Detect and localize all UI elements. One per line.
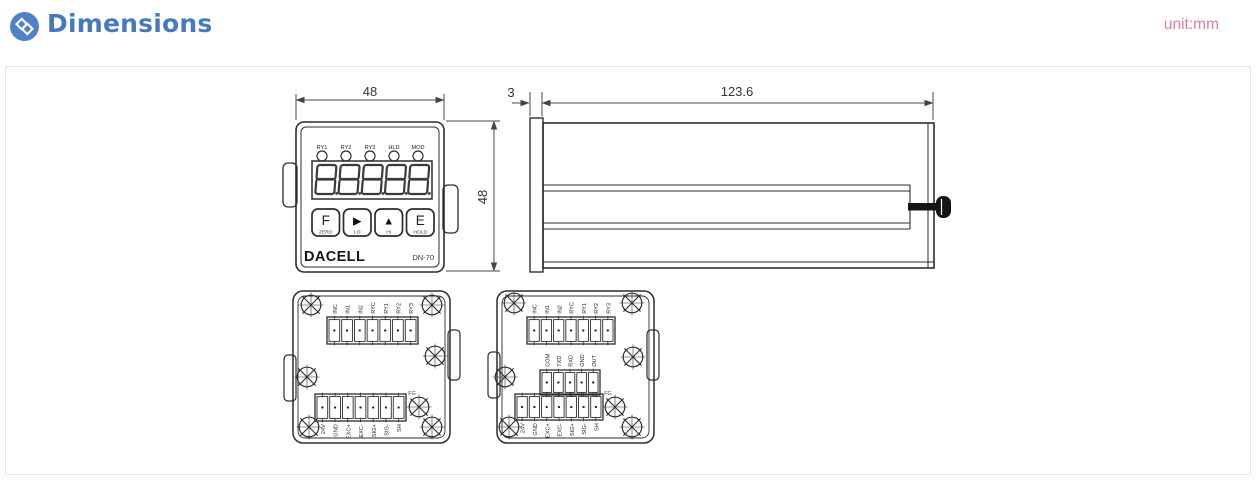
terminal-label: RXD: [569, 355, 575, 367]
terminal-label: SIG-: [582, 423, 588, 435]
mounting-screw-head: [936, 196, 951, 218]
terminal-label: GND: [580, 354, 586, 366]
led-indicator: [365, 151, 375, 161]
terminal-label: GND: [533, 423, 539, 435]
dimensions-icon: [9, 11, 40, 42]
led-indicator: [341, 151, 351, 161]
screw-icon: [603, 395, 628, 420]
terminal-label: 24V: [321, 424, 327, 434]
mounting-tab: [488, 352, 500, 398]
terminal-label: IN1: [545, 305, 551, 314]
screw-icon: [407, 395, 432, 420]
terminal-label: IN1: [346, 305, 352, 314]
front-width-dim: 48: [363, 84, 377, 99]
mounting-screw-rod: [908, 203, 938, 211]
terminal-label: INC: [533, 304, 539, 314]
terminal-label: RY1: [582, 303, 588, 314]
led-label: RY2: [341, 145, 352, 151]
terminal-label: OUT: [592, 354, 598, 366]
seven-segment-display: [315, 165, 433, 195]
terminal-label: TXD: [557, 356, 563, 367]
terminal-label: RYC: [570, 302, 576, 314]
seven-segment-digit: [409, 165, 429, 180]
seven-segment-digit: [386, 165, 406, 180]
page-title: Dimensions: [47, 9, 212, 38]
terminal-label: RY1: [384, 303, 390, 314]
screw-icon: [497, 415, 522, 440]
terminal-label: SIG-: [385, 424, 391, 436]
terminal-label: EXC-: [558, 423, 564, 437]
terminal-label: EXC+: [346, 424, 352, 439]
seven-segment-digit: [316, 165, 336, 180]
terminal-label: EXC-: [359, 424, 365, 438]
front-bezel-flange: [530, 118, 543, 272]
fg-label-right: FG: [604, 391, 612, 397]
back-view-right: INCIN1IN2RYCRY1RY2RY3COMTXDRXDGNDOUT24VG…: [488, 291, 659, 444]
terminal-label: RY2: [397, 303, 403, 314]
mounting-tab: [443, 185, 458, 233]
terminal-label: SIG+: [372, 424, 378, 437]
terminal-label: IN2: [358, 305, 364, 314]
led-label: RY1: [317, 145, 328, 151]
terminal-label: 24V: [521, 423, 527, 433]
seven-segment-digit: [363, 165, 383, 180]
decimal-point: [428, 192, 431, 195]
led-label: RY3: [365, 145, 376, 151]
button-key: F: [322, 213, 330, 228]
terminal-label: RY2: [594, 303, 600, 314]
dimension-drawing: 48 48 3 123.6 RY1RY2RY3HLDMOD FZERO▶LO▲H…: [0, 66, 1257, 475]
front-buttons: FZERO▶LO▲HIEHOLD: [312, 209, 434, 236]
front-led-row: RY1RY2RY3HLDMOD: [317, 145, 425, 161]
button-sublabel: HI: [386, 230, 391, 236]
button-key: E: [416, 213, 425, 228]
screw-icon: [423, 344, 448, 369]
model-label: DN-70: [412, 253, 434, 262]
body-outline: [543, 123, 934, 268]
terminal-label: IN2: [557, 305, 563, 314]
screw-icon: [621, 345, 646, 370]
side-depth-dim: 123.6: [721, 84, 754, 99]
screw-icon: [620, 291, 645, 316]
led-indicator: [413, 151, 423, 161]
button-key: ▶: [353, 216, 362, 228]
terminal-label: EXC+: [545, 423, 551, 438]
screw-icon: [420, 415, 445, 440]
screw-icon: [502, 291, 527, 316]
back-view-left: INCIN1IN2RYCRY1RY2RY324VGNDEXC+EXC-SIG+S…: [284, 291, 460, 443]
terminal-label: RYC: [371, 302, 377, 314]
button-sublabel: HOLD: [413, 230, 427, 236]
button-sublabel: ZERO: [319, 230, 333, 236]
terminal-label: COM: [545, 353, 551, 366]
terminal-label: GND: [334, 424, 340, 436]
brand-logo: DACELL: [304, 249, 365, 265]
front-height-dim: 48: [475, 190, 490, 204]
fg-label-left: FG: [408, 391, 416, 397]
terminal-label: RY3: [606, 303, 612, 314]
led-indicator: [389, 151, 399, 161]
terminal-label: SIG+: [570, 423, 576, 436]
terminal-label: SH: [397, 424, 403, 432]
button-sublabel: LO: [354, 230, 361, 236]
terminal-label: RY3: [409, 303, 415, 314]
mounting-tab: [283, 163, 297, 207]
side-flange-dim: 3: [507, 85, 514, 100]
side-view-drawing: [530, 118, 951, 272]
led-label: MOD: [411, 145, 424, 151]
terminal-label: INC: [333, 304, 339, 314]
dimension-lines: [296, 92, 933, 271]
mounting-tab: [284, 355, 296, 401]
front-view-drawing: RY1RY2RY3HLDMOD FZERO▶LO▲HIEHOLD DACELL …: [283, 122, 458, 272]
section-header: Dimensions unit:mm: [0, 0, 1257, 60]
led-label: HLD: [388, 145, 399, 151]
led-indicator: [317, 151, 327, 161]
unit-label: unit:mm: [1164, 9, 1219, 34]
terminal-label: SH: [594, 423, 600, 431]
button-key: ▲: [383, 216, 394, 228]
screw-icon: [620, 415, 645, 440]
seven-segment-digit: [340, 165, 360, 180]
